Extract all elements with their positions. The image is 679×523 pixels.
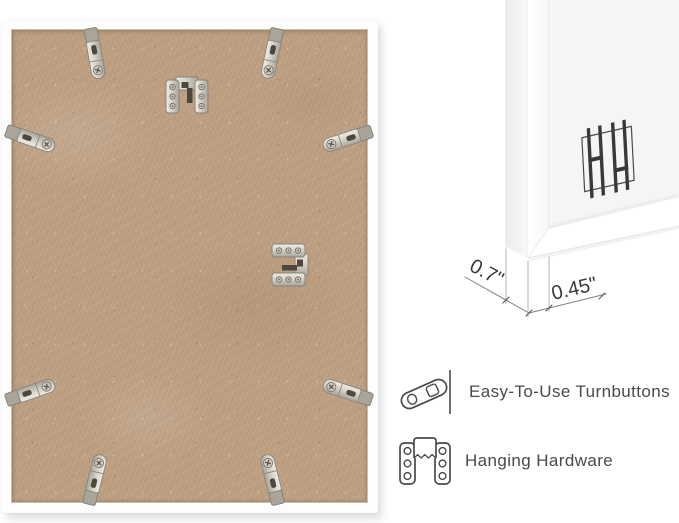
feature-label-turnbuttons: Easy-To-Use Turnbuttons bbox=[469, 382, 670, 402]
turnbutton-hardware bbox=[84, 27, 106, 79]
frame-side-face bbox=[506, 0, 528, 258]
turnbutton-hardware bbox=[4, 377, 56, 406]
step-hanger-hardware bbox=[272, 244, 308, 286]
turnbutton-icon bbox=[398, 367, 456, 417]
frame-front-vertical bbox=[528, 0, 548, 258]
turnbutton-hardware bbox=[82, 453, 107, 506]
product-image: 0.7" 0.45" Easy-To-Use Turnbuttons bbox=[0, 0, 679, 523]
turnbutton-hardware bbox=[260, 27, 284, 80]
hanging-hardware-icon bbox=[398, 434, 452, 488]
frame-mat-area bbox=[548, 0, 679, 229]
feature-hanging-hardware: Hanging Hardware bbox=[398, 434, 613, 488]
turnbutton-hardware bbox=[4, 124, 56, 153]
hardware-items bbox=[4, 27, 374, 506]
face-dimension-label: 0.45" bbox=[549, 273, 599, 305]
feature-turnbuttons: Easy-To-Use Turnbuttons bbox=[398, 366, 670, 418]
frame-back-photo bbox=[2, 20, 378, 513]
turnbutton-hardware bbox=[259, 453, 284, 506]
step-hanger-hardware bbox=[166, 77, 208, 113]
turnbutton-hardware bbox=[321, 378, 374, 407]
frame-hardware-layer bbox=[2, 20, 378, 513]
turnbutton-hardware bbox=[321, 124, 374, 153]
frame-corner-detail: 0.7" 0.45" bbox=[440, 0, 679, 334]
depth-dimension-label: 0.7" bbox=[466, 255, 507, 291]
feature-label-hanging-hardware: Hanging Hardware bbox=[465, 451, 613, 471]
